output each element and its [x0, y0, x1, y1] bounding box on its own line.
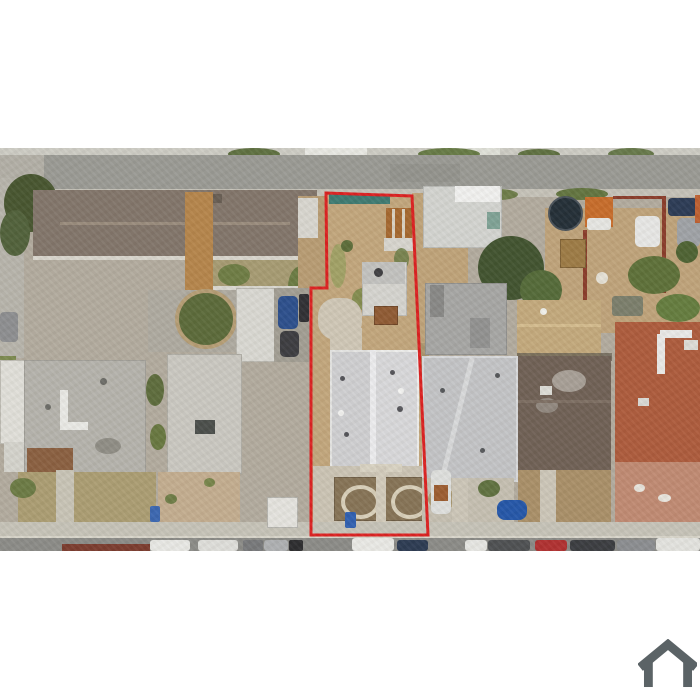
- rust-shed: [386, 208, 412, 242]
- white-building-mid: [167, 354, 242, 474]
- duplex-vent-1: [340, 376, 345, 381]
- duplex-shade-left: [330, 350, 370, 466]
- gable-dot-1: [440, 388, 445, 393]
- roof-stain: [95, 438, 121, 454]
- bushes-right-1: [628, 256, 680, 294]
- white-wall-top-mid: [298, 198, 318, 238]
- front-yard-brown-house: [518, 470, 611, 526]
- red-roof-unit: [684, 340, 698, 350]
- front-walk-brown-house: [540, 470, 556, 526]
- car-bottom-white-2: [198, 540, 238, 551]
- tarp-teal: [329, 194, 390, 204]
- patio-shrub-1: [165, 494, 177, 504]
- duplex-vent-4: [344, 432, 349, 437]
- brown-roof-vent: [540, 386, 552, 395]
- red-roof-vent: [638, 398, 649, 406]
- red-roof-pipe-h: [660, 330, 692, 338]
- car-left-edge: [0, 312, 18, 342]
- tree-small-left: [0, 210, 30, 256]
- palm-right: [676, 241, 698, 263]
- duplex-vent-2: [390, 370, 395, 375]
- car-rust-patch: [434, 485, 448, 501]
- car-bottom-white-van-2: [656, 538, 700, 551]
- parcel-shrub-center: [341, 240, 353, 252]
- tan-house-ridge: [517, 324, 601, 327]
- left-house-ridge: [60, 222, 290, 225]
- alley-green-2: [150, 424, 166, 450]
- car-bottom-gray-2: [617, 540, 655, 551]
- car-bottom-gray: [243, 540, 263, 551]
- left-house-roof: [33, 190, 317, 260]
- bushes-right-2: [656, 294, 700, 322]
- rust-shed-streak-1: [392, 209, 395, 241]
- duplex-pipe-white-2: [338, 410, 344, 416]
- trash-bin-blue-2: [150, 506, 160, 522]
- back-house-vent: [374, 268, 383, 277]
- roof-pipe-horizontal: [60, 422, 88, 430]
- ac-unit-dark: [195, 420, 215, 434]
- left-house-chimney: [213, 194, 222, 203]
- garage-white: [236, 288, 276, 362]
- car-bottom-white-1: [150, 540, 190, 551]
- duplex-pipe-white-1: [398, 388, 404, 394]
- car-white-topright: [635, 216, 660, 247]
- yard-weeds-1: [218, 264, 250, 286]
- brown-roof-stain-1: [552, 370, 586, 392]
- car-bottom-rust-row: [62, 544, 150, 551]
- car-bottom-silver: [264, 540, 288, 551]
- duplex-ridge: [370, 350, 376, 466]
- tan-house-vent: [540, 308, 547, 315]
- brown-roof-patch: [27, 448, 73, 472]
- patio-pink: [615, 462, 700, 522]
- trash-bin-blue-1: [345, 512, 356, 528]
- car-blue-driveway: [278, 296, 298, 329]
- car-bottom-red: [535, 540, 567, 551]
- duplex-vent-3: [397, 406, 403, 412]
- back-house-roof-gray: [362, 262, 405, 284]
- car-dark-driveway: [280, 331, 299, 357]
- pool: [175, 289, 237, 349]
- alley-green-1: [146, 374, 164, 406]
- patio-furniture-1: [634, 484, 645, 492]
- rust-box: [374, 306, 398, 325]
- junk-vehicle: [612, 296, 643, 316]
- patio-furniture-2: [658, 494, 671, 502]
- house-logo-svg: [638, 639, 697, 688]
- trailer-roof-panel: [455, 186, 500, 202]
- satellite-dish: [596, 272, 608, 284]
- corrugated-dark-streak-2: [470, 318, 490, 348]
- yard-tree-left: [10, 478, 36, 498]
- front-shrub-green: [478, 480, 500, 497]
- page: { "page": { "background": "#ffffff" }, "…: [0, 0, 700, 700]
- front-walk-right: [452, 478, 468, 528]
- house-logo-icon: [638, 639, 697, 688]
- shed-brown-right: [560, 239, 586, 268]
- structure-orange-edge: [695, 195, 700, 223]
- trampoline: [548, 196, 583, 231]
- van-white-right: [587, 218, 611, 230]
- street-top-patch: [390, 164, 460, 182]
- rv-white: [267, 497, 298, 528]
- car-bottom-white-van: [352, 538, 394, 551]
- fence-rust-top: [613, 196, 666, 199]
- trailer-door-teal: [487, 212, 500, 229]
- car-bottom-darkblue: [397, 540, 428, 551]
- car-bottom-darkgray: [488, 540, 530, 551]
- rust-shed-streak-2: [402, 209, 405, 241]
- street-top: [0, 155, 700, 191]
- gable-dot-3: [495, 373, 500, 378]
- car-bottom-black: [289, 540, 303, 551]
- brown-roof-ridge: [518, 400, 611, 403]
- corrugated-dark-streak: [430, 285, 444, 317]
- car-blue-lower-right: [497, 500, 527, 520]
- front-walkway-left: [56, 470, 74, 528]
- car-bottom-white-3: [465, 540, 487, 551]
- roof-vent-1: [100, 378, 107, 385]
- patio-shrub-2: [204, 478, 215, 487]
- roof-vent-2: [45, 404, 51, 410]
- front-yard-dry-left: [18, 472, 156, 528]
- red-roof-pipe-v: [657, 334, 665, 374]
- roof-pipe-vertical: [60, 390, 68, 426]
- aerial-photo: [0, 148, 700, 551]
- tan-house-roof: [517, 300, 601, 356]
- trash-bins-dark: [299, 294, 309, 322]
- gable-dot-2: [480, 448, 485, 453]
- wood-fence: [185, 192, 213, 290]
- car-bottom-dark-2: [570, 540, 615, 551]
- car-darkblue-topright: [668, 198, 697, 216]
